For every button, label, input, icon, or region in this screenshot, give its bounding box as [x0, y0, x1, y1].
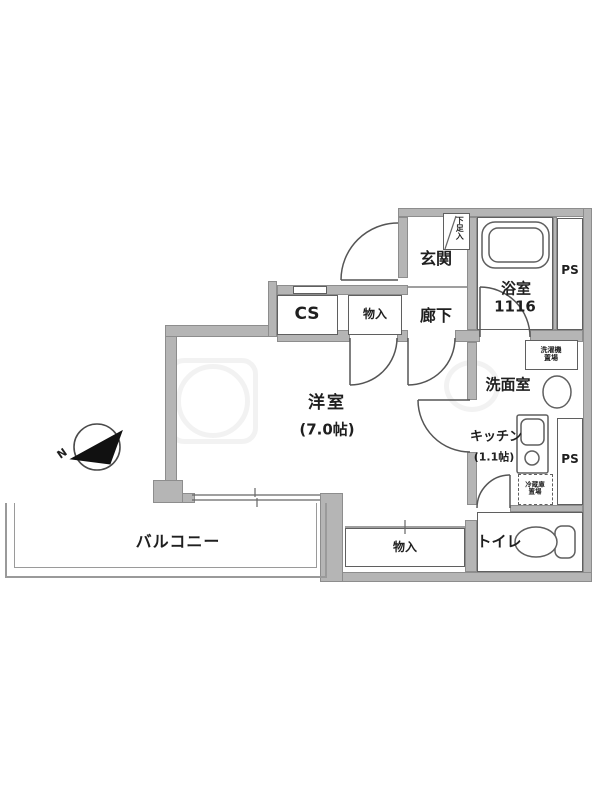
wall-left: [165, 325, 177, 493]
entrance-label: 玄関: [420, 250, 452, 268]
storage-bottom-label: 物入: [393, 541, 417, 555]
hallway-label: 廊下: [420, 307, 452, 325]
window-cs: [293, 286, 327, 294]
bathroom-size-label: 1116: [494, 298, 536, 315]
compass: [71, 424, 122, 470]
wall-bottom: [330, 572, 592, 582]
compass-north-label: N: [55, 446, 70, 462]
wall-left-step: [153, 480, 183, 503]
toilet-door-arc: [477, 475, 510, 508]
kitchen-burner: [525, 451, 539, 465]
washbasin: [543, 376, 571, 408]
wall-right: [583, 208, 592, 582]
western-room-size-label: (7.0帖): [299, 421, 354, 438]
compass-needle: [71, 431, 122, 464]
bathroom-label: 浴室: [501, 280, 531, 297]
balcony-label: バルコニー: [136, 533, 221, 551]
wall-top: [398, 208, 592, 217]
plan-linework: [0, 0, 600, 800]
kitchen-sink: [521, 419, 544, 445]
wall-storage-divider: [465, 520, 477, 572]
closet-door-arc: [350, 338, 397, 385]
storage-top-label: 物入: [363, 308, 387, 322]
floor-plan: 玄関 下足入 廊下 浴室 1116 PS CS 物入 洋室 (7.0帖) 洗面室…: [0, 0, 600, 800]
compass-circle: [74, 424, 120, 470]
kitchen-label: キッチン: [470, 431, 522, 446]
wall-mid-band-c: [455, 330, 480, 342]
fridge-line2: 置場: [529, 488, 542, 496]
wall-toilet-top: [510, 505, 583, 512]
washer-area-label: 洗濯機 置場: [541, 346, 562, 362]
western-room-label: 洋室: [308, 394, 346, 414]
cs-label: CS: [294, 305, 319, 325]
washer-line1: 洗濯機: [541, 346, 562, 354]
toilet-label: トイレ: [476, 533, 521, 550]
ps-top-label: PS: [561, 264, 578, 278]
entrance-door-arc: [341, 223, 398, 280]
fridge-area-label: 冷蔵庫 置場: [525, 482, 545, 497]
washer-line2: 置場: [544, 354, 558, 362]
ps-bottom-label: PS: [561, 453, 578, 467]
kitchen-size-label: (1.1帖): [474, 452, 515, 465]
wall-core-mid: [467, 342, 477, 400]
washroom-label: 洗面室: [485, 376, 530, 393]
wall-entrance-left: [398, 217, 408, 278]
shoe-box-label: 下足入: [455, 216, 464, 240]
wall-room-top-left: [165, 325, 277, 337]
wall-cs-jog: [268, 281, 277, 337]
watermark-shape: [176, 364, 250, 438]
